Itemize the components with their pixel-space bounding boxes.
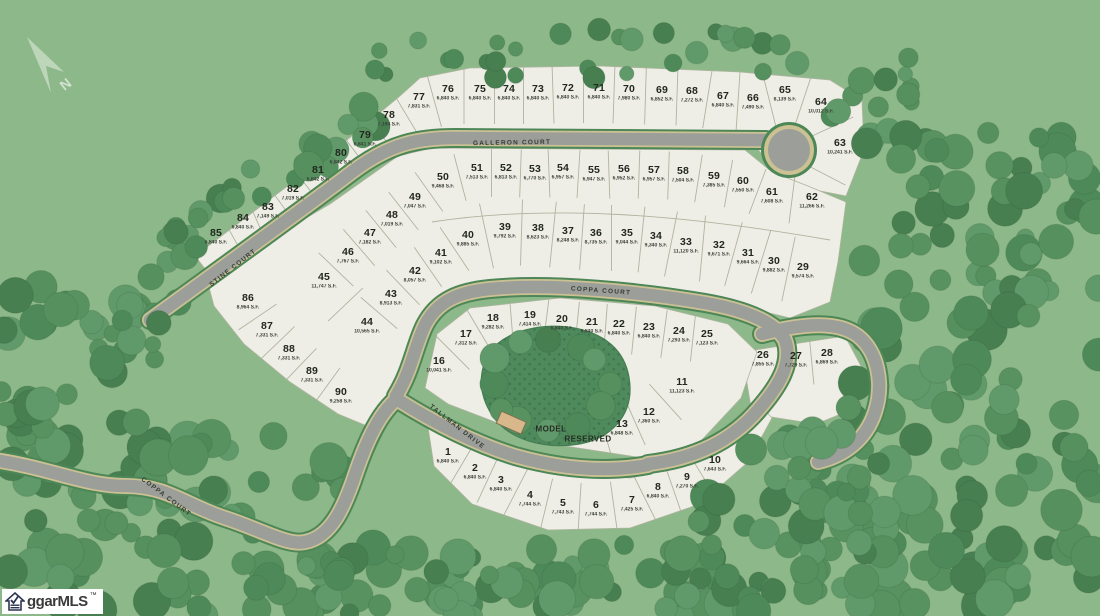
house-logo-icon [5, 592, 25, 611]
logo-trademark: ™ [90, 592, 97, 599]
map-graphics: N [0, 0, 1100, 616]
logo-text: ggarMLS [27, 593, 88, 610]
mls-logo: ggarMLS ™ [2, 589, 103, 614]
cul-de-sac [761, 122, 817, 178]
subdivision-plat-map: N 1 6,840 S.F. 2 6,840 S.F. 3 6,840 S.F.… [0, 0, 1100, 616]
